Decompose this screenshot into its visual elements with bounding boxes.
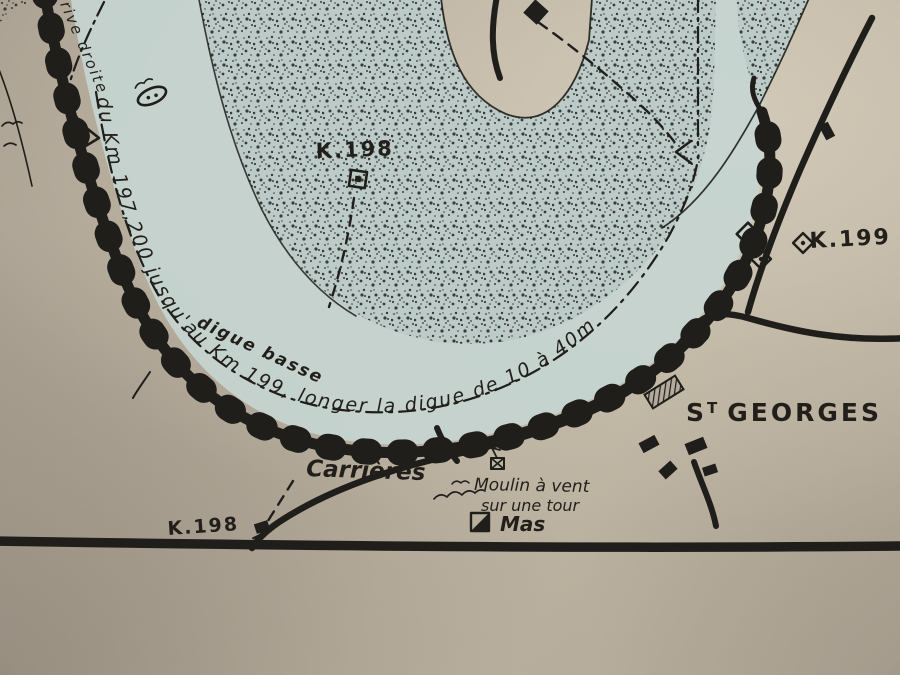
building bbox=[684, 437, 707, 456]
river-map-drawing: du Km 197,200 jusqu'au Km 199, longer la… bbox=[0, 0, 900, 675]
rocks-scribble bbox=[452, 481, 469, 484]
km198-top-label: K.198 bbox=[315, 136, 394, 163]
mas-symbol bbox=[471, 513, 489, 531]
road-island bbox=[493, 0, 500, 78]
dike-spur bbox=[133, 372, 150, 398]
neatline bbox=[0, 541, 900, 547]
building bbox=[658, 461, 677, 480]
beacon-top-icon bbox=[523, 0, 548, 25]
moulin-label-line1: Moulin à vent bbox=[474, 475, 591, 497]
km199-label: K.199 bbox=[809, 225, 892, 254]
map-photo: du Km 197,200 jusqu'au Km 199, longer la… bbox=[0, 0, 900, 675]
km198-bottom-label: K.198 bbox=[167, 513, 240, 540]
mas-label: Mas bbox=[500, 512, 545, 536]
st-georges-label: STGEORGES bbox=[686, 398, 882, 427]
windmill-icon bbox=[491, 448, 504, 469]
building bbox=[702, 464, 718, 477]
building bbox=[638, 435, 659, 453]
carrieres-label: Carrières bbox=[306, 456, 426, 486]
sandbank-topleft-corner bbox=[0, 0, 34, 24]
